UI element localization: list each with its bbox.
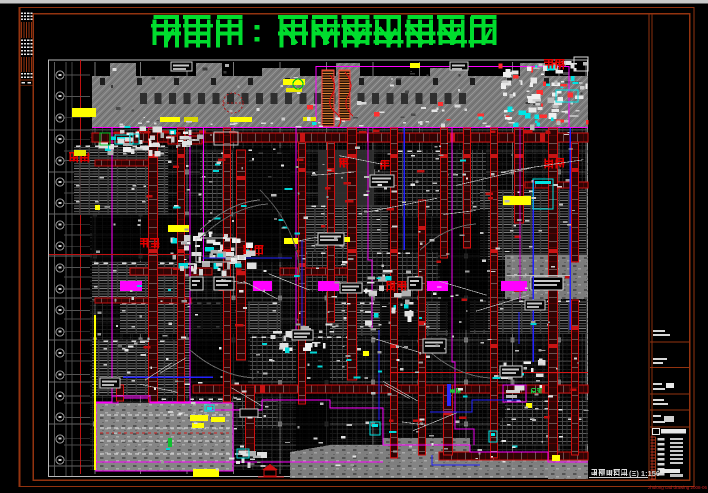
svg-text:zhulong cad drawing 2008-06: zhulong cad drawing 2008-06 [648,485,708,490]
svg-text:(Ξ) 1:150: (Ξ) 1:150 [629,469,660,478]
